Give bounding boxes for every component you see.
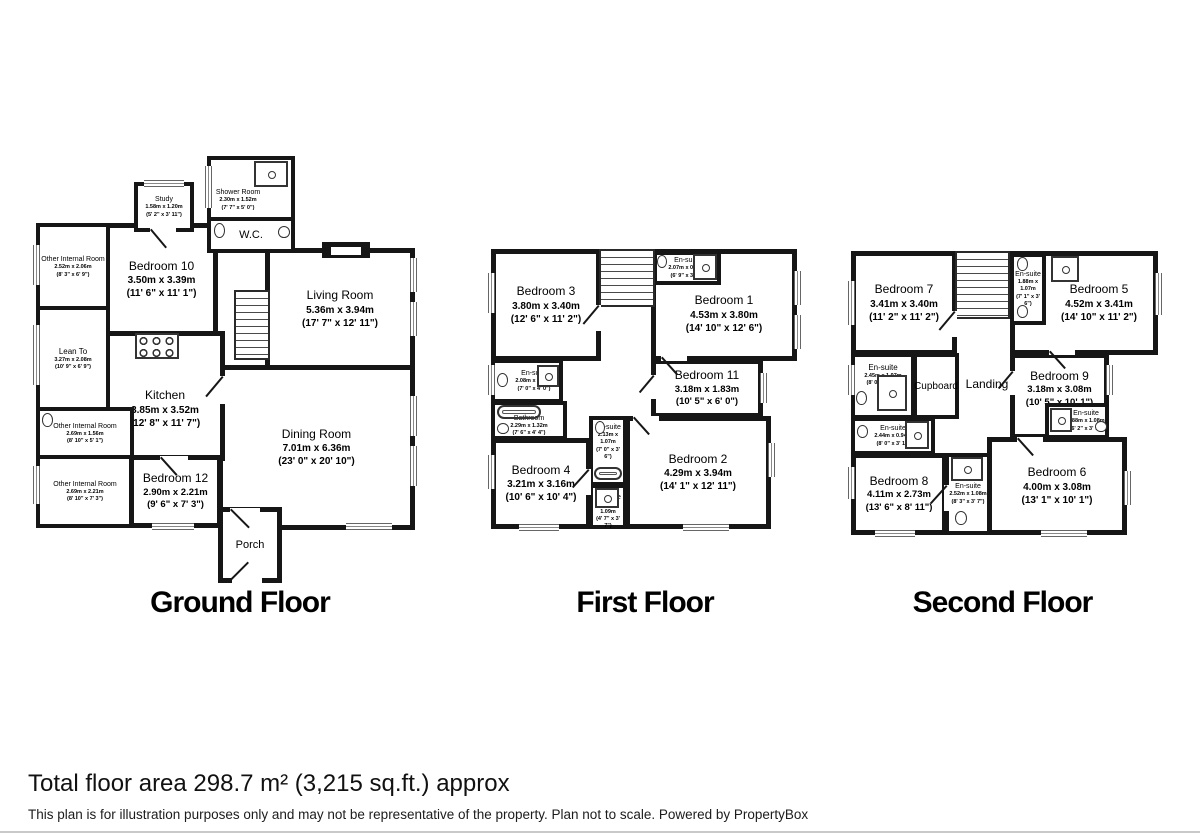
window (848, 365, 855, 395)
window (794, 271, 801, 305)
toilet-icon (857, 425, 868, 438)
toilet-icon (497, 373, 508, 387)
disclaimer-text: This plan is for illustration purposes o… (28, 807, 808, 822)
room-dining: Dining Room 7.01m x 6.36m (23' 0" x 20' … (218, 365, 415, 530)
room-porch: Porch (218, 507, 282, 583)
bath-icon (594, 467, 622, 480)
room-living: Living Room 5.36m x 3.94m (17' 7" x 12' … (265, 248, 415, 370)
toilet-icon (856, 391, 867, 405)
window (1041, 530, 1087, 537)
window (848, 467, 855, 499)
second-floor-plan: Bedroom 5 4.52m x 3.41m (14' 10" x 11' 2… (845, 245, 1160, 535)
room-label: Bedroom 2 4.29m x 3.94m (14' 1" x 12' 11… (660, 452, 736, 494)
window (875, 530, 915, 537)
shower-tray-icon (951, 457, 983, 481)
room-label: Bedroom 10 3.50m x 3.39m (11' 6" x 11' 1… (127, 259, 197, 301)
room-label: Porch (236, 538, 265, 552)
room-label: Kitchen 3.85m x 3.52m (12' 8" x 11' 7") (130, 388, 200, 430)
room-label: Other Internal Room 2.69m x 2.21m (8' 10… (53, 480, 116, 503)
room-label: Bedroom 8 4.11m x 2.73m (13' 6" x 8' 11"… (866, 474, 933, 514)
room-label: Bedroom 11 3.18m x 1.83m (10' 5" x 6' 0"… (675, 368, 739, 408)
room-label: W.C. (239, 228, 263, 242)
window (1106, 365, 1113, 395)
kitchen-hob-icon (135, 333, 179, 359)
window (848, 281, 855, 325)
room-bedroom-12: Bedroom 12 2.90m x 2.21m (9' 6" x 7' 3") (129, 455, 222, 528)
room-label: Bedroom 12 2.90m x 2.21m (9' 6" x 7' 3") (143, 471, 208, 511)
toilet-icon (1017, 305, 1028, 318)
room-lean-to: Lean To 3.27m x 2.08m (10' 9" x 6' 9") (36, 306, 110, 412)
window (794, 315, 801, 349)
room-label: Bedroom 5 4.52m x 3.41m (14' 10" x 11' 2… (1061, 282, 1137, 324)
room-label: Other Internal Room 2.52m x 2.06m (8' 3"… (41, 255, 104, 278)
room-label: Dining Room 7.01m x 6.36m (23' 0" x 20' … (278, 427, 355, 469)
shower-tray-icon (1050, 408, 1072, 432)
toilet-icon (955, 511, 967, 525)
toilet-icon (214, 223, 225, 238)
room-label: En-suite 1.88m x 1.07m (7' 1" x 3' 6") (1014, 270, 1042, 308)
room-study: Study 1.58m x 1.20m (5' 2" x 3' 11") (134, 182, 194, 232)
room-label: Bedroom 7 3.41m x 3.40m (11' 2" x 11' 2"… (869, 282, 939, 324)
room-label: Shower Room 2.30m x 1.52m (7' 7" x 5' 0"… (216, 188, 260, 211)
room-label-landing: Landing (957, 365, 1017, 405)
shower-tray-icon (537, 365, 559, 387)
bottom-divider (0, 831, 1200, 833)
room-label: Study 1.58m x 1.20m (5' 2" x 3' 11") (145, 195, 182, 218)
toilet-icon (1017, 257, 1028, 271)
window (760, 373, 767, 403)
room-bedroom-8: Bedroom 8 4.11m x 2.73m (13' 6" x 8' 11"… (851, 453, 947, 535)
room-bedroom-6: Bedroom 6 4.00m x 3.08m (13' 1" x 10' 1"… (987, 437, 1127, 535)
stairs-icon (955, 251, 1010, 319)
room-label: Bedroom 4 3.21m x 3.16m (10' 6" x 10' 4"… (506, 463, 577, 505)
window (205, 166, 212, 208)
ground-floor-plan: Living Room 5.36m x 3.94m (17' 7" x 12' … (30, 150, 450, 590)
stairs-icon (599, 249, 655, 307)
shower-tray-icon (1051, 256, 1079, 282)
shower-tray-icon (693, 254, 717, 280)
window (410, 396, 417, 436)
room-bedroom-3: Bedroom 3 3.80m x 3.40m (12' 6" x 11' 2"… (491, 249, 601, 361)
window (410, 258, 417, 292)
window (410, 302, 417, 336)
shower-tray-icon (877, 375, 907, 411)
stairs-icon (234, 290, 270, 360)
shower-tray-icon (595, 488, 619, 508)
toilet-icon (657, 255, 667, 268)
window (1155, 273, 1162, 315)
room-other-internal-top: Other Internal Room 2.52m x 2.06m (8' 3"… (36, 223, 110, 311)
room-other-internal-bottom: Other Internal Room 2.69m x 2.21m (8' 10… (36, 455, 134, 528)
first-floor-plan: Bedroom 1 4.53m x 3.80m (14' 10" x 12' 6… (485, 243, 805, 535)
room-label: Living Room 5.36m x 3.94m (17' 7" x 12' … (302, 288, 378, 330)
window (519, 524, 559, 531)
window (488, 273, 495, 313)
room-label: En-suite 2.52m x 1.08m (8' 3" x 3' 7") (949, 482, 986, 505)
toilet-icon (278, 226, 290, 238)
toilet-icon (595, 421, 605, 434)
room-label: Cupboard (914, 380, 958, 393)
room-bedroom-7: Bedroom 7 3.41m x 3.40m (11' 2" x 11' 2"… (851, 251, 957, 355)
toilet-icon (497, 423, 509, 434)
ground-floor-title: Ground Floor (30, 586, 450, 620)
window (346, 523, 392, 530)
window (152, 523, 194, 530)
window (768, 443, 775, 477)
room-ensuite-top: En-suite 1.88m x 1.07m (7' 1" x 3' 6") (1010, 253, 1046, 325)
toilet-icon (1095, 421, 1107, 432)
window (488, 455, 495, 489)
window (33, 466, 40, 504)
floorplan-page: { "floors": [ { "title": "Ground Floor",… (0, 0, 1200, 840)
room-cupboard: Cupboard (913, 353, 959, 419)
window (683, 524, 729, 531)
window (33, 245, 40, 285)
toilet-icon (42, 413, 53, 427)
second-floor-title: Second Floor (845, 586, 1160, 620)
shower-tray-icon (905, 421, 929, 449)
total-floor-area: Total floor area 298.7 m² (3,215 sq.ft.)… (28, 770, 510, 798)
window (144, 180, 184, 187)
bath-icon (497, 405, 541, 419)
room-label: Lean To 3.27m x 2.08m (10' 9" x 6' 9") (54, 347, 91, 372)
doorway (232, 578, 262, 583)
fireplace-icon (322, 242, 370, 258)
shower-tray-icon (254, 161, 288, 187)
window (33, 325, 40, 385)
room-label: Bedroom 3 3.80m x 3.40m (12' 6" x 11' 2"… (511, 284, 581, 326)
room-label: Bedroom 6 4.00m x 3.08m (13' 1" x 10' 1"… (1022, 465, 1093, 507)
room-label: Bedroom 1 4.53m x 3.80m (14' 10" x 12' 6… (686, 293, 763, 335)
window (488, 365, 495, 395)
room-bedroom-11: Bedroom 11 3.18m x 1.83m (10' 5" x 6' 0"… (651, 359, 763, 418)
window (1124, 471, 1131, 505)
room-label: Other Internal Room 2.69m x 1.56m (8' 10… (53, 422, 116, 445)
first-floor-title: First Floor (485, 586, 805, 620)
window (410, 446, 417, 486)
